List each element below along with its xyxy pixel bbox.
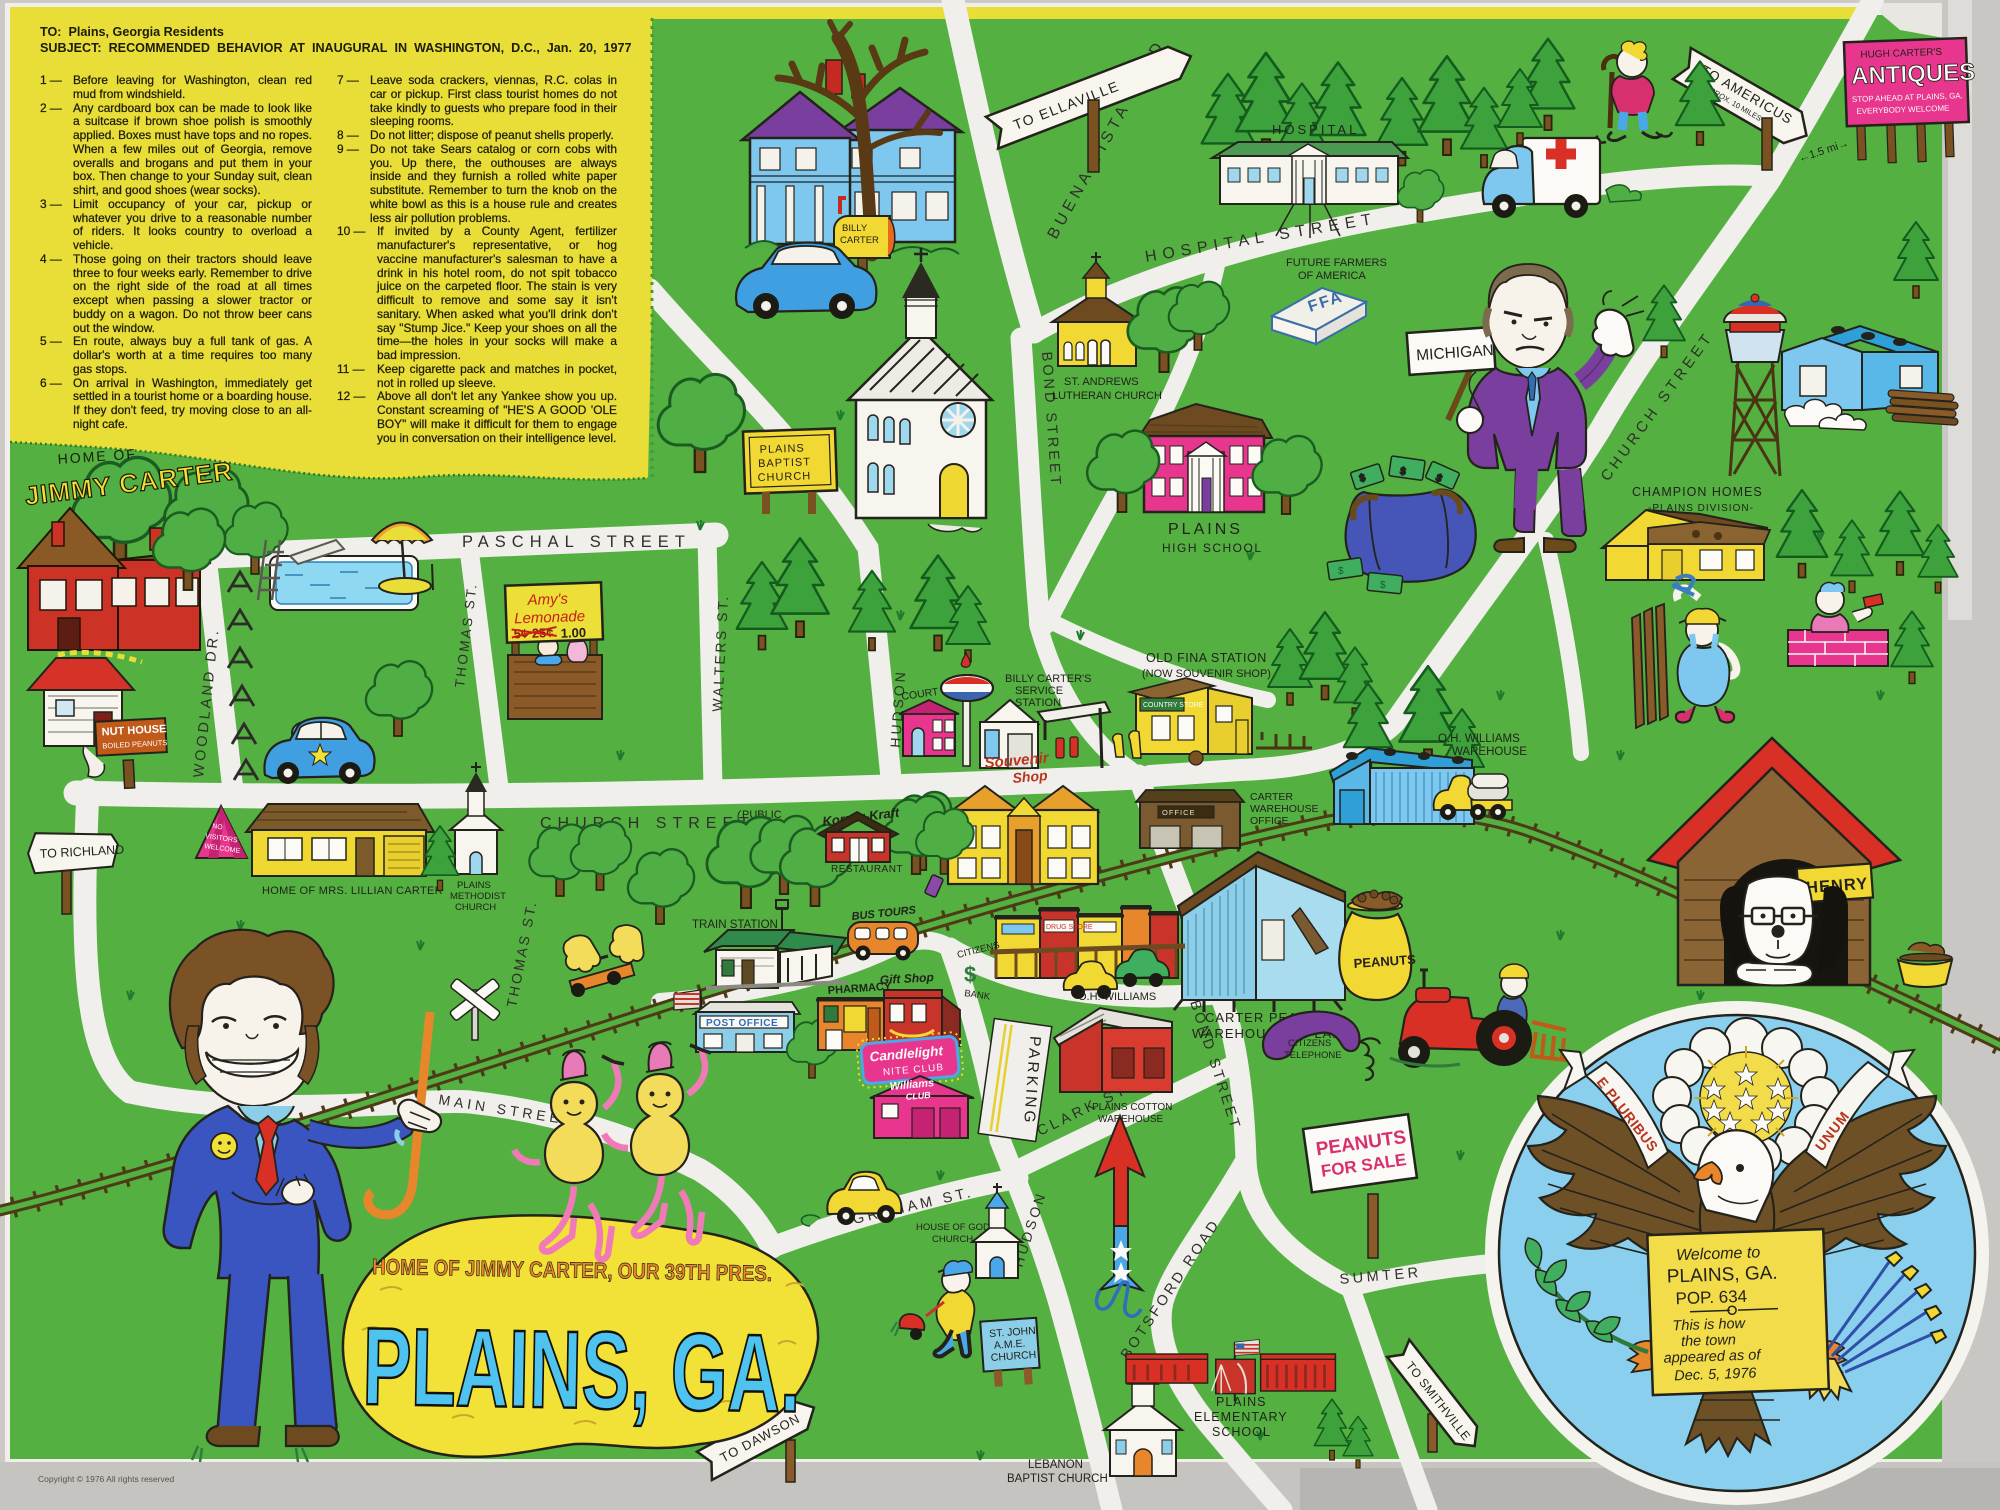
svg-text:PLAINS: PLAINS bbox=[759, 442, 805, 456]
svg-text:POP. 634: POP. 634 bbox=[1675, 1287, 1747, 1308]
svg-text:Copyright © 1976 All rights r: Copyright © 1976 All rights reserved bbox=[38, 1474, 174, 1484]
svg-text:PLAINS: PLAINS bbox=[457, 880, 491, 891]
svg-text:HOME OF MRS. LILLIAN CARTER: HOME OF MRS. LILLIAN CARTER bbox=[262, 885, 443, 897]
svg-text:STATION: STATION bbox=[1015, 697, 1061, 709]
svg-text:DRUG STORE: DRUG STORE bbox=[1046, 924, 1093, 931]
svg-text:BAPTIST CHURCH: BAPTIST CHURCH bbox=[1007, 1473, 1108, 1485]
svg-text:HOUSE OF GOD: HOUSE OF GOD bbox=[916, 1222, 990, 1233]
svg-text:OFFICE: OFFICE bbox=[1250, 815, 1289, 827]
svg-text:$: $ bbox=[964, 962, 976, 987]
svg-text:POST OFFICE: POST OFFICE bbox=[706, 1018, 778, 1029]
svg-text:CHURCH: CHURCH bbox=[757, 470, 811, 484]
svg-text:FUTURE FARMERS: FUTURE FARMERS bbox=[1286, 257, 1387, 269]
svg-text:WAREHOUSE: WAREHOUSE bbox=[1452, 746, 1527, 758]
svg-text:CHURCH: CHURCH bbox=[455, 902, 496, 913]
svg-text:OF AMERICA: OF AMERICA bbox=[1298, 270, 1367, 282]
svg-text:CARTER: CARTER bbox=[840, 235, 879, 246]
svg-text:ST. ANDREWS: ST. ANDREWS bbox=[1064, 376, 1139, 388]
svg-text:HOSPITAL: HOSPITAL bbox=[1272, 122, 1359, 137]
svg-text:WAREHOUSE: WAREHOUSE bbox=[1250, 803, 1318, 815]
svg-text:LEBANON: LEBANON bbox=[1028, 1459, 1083, 1471]
svg-text:1.00: 1.00 bbox=[560, 625, 586, 641]
svg-text:RESTAURANT: RESTAURANT bbox=[831, 864, 903, 875]
svg-text:Gift Shop: Gift Shop bbox=[879, 970, 934, 987]
svg-text:PLAINS, GA.: PLAINS, GA. bbox=[362, 1305, 802, 1436]
svg-text:the town: the town bbox=[1681, 1332, 1736, 1350]
svg-text:Amy's: Amy's bbox=[526, 590, 568, 608]
svg-text:O.H. WILLIAMS: O.H. WILLIAMS bbox=[1078, 991, 1156, 1003]
svg-text:Dec. 5, 1976: Dec. 5, 1976 bbox=[1674, 1365, 1758, 1384]
svg-text:SERVICE: SERVICE bbox=[1015, 685, 1063, 697]
svg-text:BAPTIST: BAPTIST bbox=[758, 456, 811, 470]
svg-text:(NOW SOUVENIR SHOP): (NOW SOUVENIR SHOP) bbox=[1142, 668, 1271, 680]
svg-text:$: $ bbox=[1380, 580, 1386, 591]
svg-text:CHAMPION HOMES: CHAMPION HOMES bbox=[1632, 485, 1763, 499]
svg-text:PLAINS: PLAINS bbox=[1216, 1395, 1266, 1409]
svg-text:TELEPHONE: TELEPHONE bbox=[1284, 1050, 1342, 1061]
svg-text:CHURCH: CHURCH bbox=[932, 1234, 973, 1245]
svg-text:AMOCO: AMOCO bbox=[953, 684, 984, 693]
svg-text:This is how: This is how bbox=[1672, 1316, 1747, 1335]
svg-text:CITIZENS: CITIZENS bbox=[1288, 1038, 1331, 1049]
svg-text:PLAINS: PLAINS bbox=[1168, 521, 1243, 538]
svg-text:LUTHERAN CHURCH: LUTHERAN CHURCH bbox=[1052, 390, 1162, 402]
svg-text:$: $ bbox=[1338, 566, 1344, 577]
svg-text:Welcome to: Welcome to bbox=[1676, 1244, 1761, 1264]
svg-text:SCHOOL: SCHOOL bbox=[1212, 1425, 1271, 1439]
svg-text:COUNTRY STORE: COUNTRY STORE bbox=[1143, 702, 1204, 709]
svg-text:BILLY CARTER'S: BILLY CARTER'S bbox=[1005, 673, 1091, 685]
svg-text:PASCHAL STREET: PASCHAL STREET bbox=[462, 533, 691, 551]
svg-text:ELEMENTARY: ELEMENTARY bbox=[1194, 1410, 1288, 1424]
svg-text:WAREHOUSE: WAREHOUSE bbox=[1098, 1114, 1164, 1125]
svg-text:OFFICE: OFFICE bbox=[1162, 808, 1196, 817]
svg-text:Shop: Shop bbox=[1012, 767, 1049, 786]
svg-text:O.H. WILLIAMS: O.H. WILLIAMS bbox=[1438, 733, 1520, 745]
svg-text:HIGH SCHOOL: HIGH SCHOOL bbox=[1162, 541, 1263, 555]
svg-text:PLAINS, GA.: PLAINS, GA. bbox=[1666, 1263, 1778, 1288]
svg-text:BILLY: BILLY bbox=[842, 223, 868, 234]
svg-text:ANTIQUES: ANTIQUES bbox=[1851, 59, 1976, 90]
svg-text:OLD FINA STATION: OLD FINA STATION bbox=[1146, 651, 1267, 665]
svg-text:METHODIST: METHODIST bbox=[450, 891, 506, 902]
svg-text:CARTER: CARTER bbox=[1250, 791, 1293, 803]
svg-text:PLAINS COTTON: PLAINS COTTON bbox=[1092, 1102, 1172, 1113]
